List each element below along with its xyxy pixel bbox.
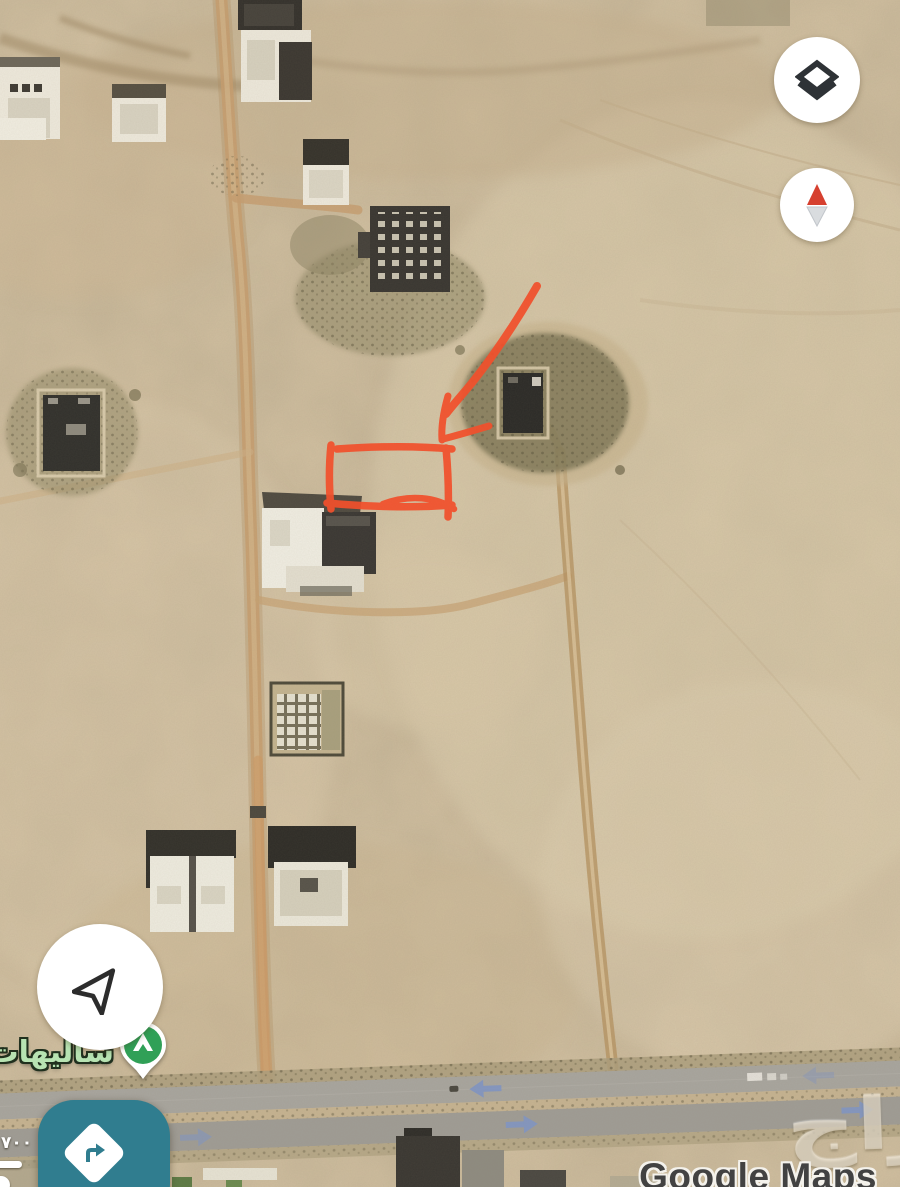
directions-button[interactable]	[38, 1100, 170, 1187]
layers-icon	[795, 59, 839, 101]
scale-bar	[0, 1161, 22, 1168]
annotation-rectangle	[330, 445, 332, 509]
compass-button[interactable]	[780, 168, 854, 242]
my-location-button[interactable]	[37, 924, 163, 1050]
map-canvas[interactable]: ساليهات حراج G	[0, 0, 900, 1187]
layers-button[interactable]	[774, 37, 860, 123]
turn-right-icon	[61, 1120, 126, 1185]
compass-needle-icon	[800, 182, 834, 228]
map-attribution: Google Maps	[608, 1156, 900, 1187]
navigation-arrow-icon	[72, 959, 128, 1015]
annotation-rectangle	[337, 447, 452, 449]
scale-value: ٧٠٠	[1, 1133, 32, 1153]
